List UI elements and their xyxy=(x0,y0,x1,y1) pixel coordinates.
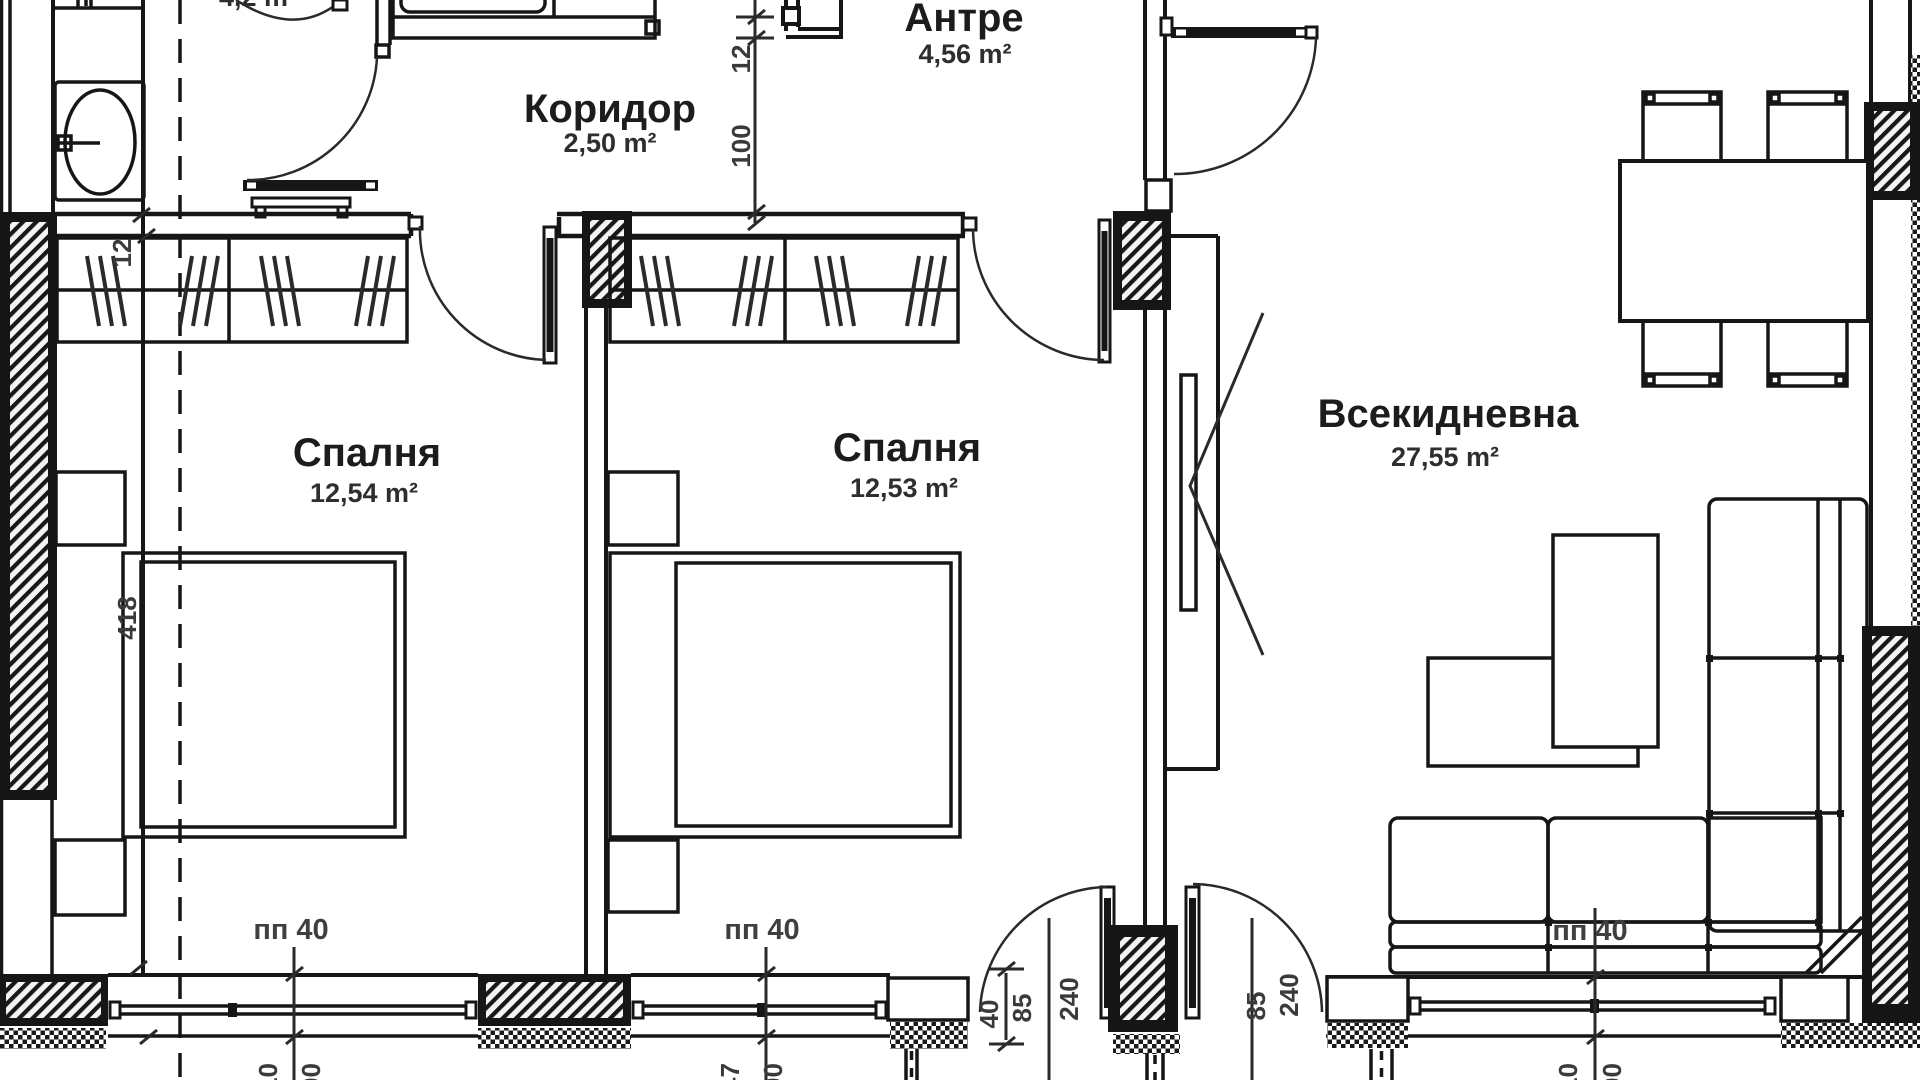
svg-text:240: 240 xyxy=(1274,973,1304,1016)
svg-text:85: 85 xyxy=(1241,992,1271,1021)
svg-text:00: 00 xyxy=(296,1063,326,1080)
svg-text:4,2 m²: 4,2 m² xyxy=(219,0,297,12)
svg-text:00: 00 xyxy=(758,1063,788,1080)
svg-text:Спалня: Спалня xyxy=(293,431,441,475)
svg-text:12,53 m²: 12,53 m² xyxy=(850,473,958,503)
svg-text:Всекидневна: Всекидневна xyxy=(1318,392,1580,436)
svg-text:Коридор: Коридор xyxy=(524,87,696,131)
svg-text:418: 418 xyxy=(112,596,142,639)
svg-text:47: 47 xyxy=(715,1063,745,1080)
svg-text:12: 12 xyxy=(107,239,137,268)
svg-text:85: 85 xyxy=(1007,994,1037,1023)
svg-text:10: 10 xyxy=(253,1063,283,1080)
svg-text:00: 00 xyxy=(1597,1063,1627,1080)
svg-text:4,56 m²: 4,56 m² xyxy=(918,39,1011,69)
svg-text:12,54 m²: 12,54 m² xyxy=(310,478,418,508)
svg-text:Спалня: Спалня xyxy=(833,426,981,470)
svg-text:пп 40: пп 40 xyxy=(1552,915,1627,947)
svg-text:пп 40: пп 40 xyxy=(724,914,799,946)
svg-text:Антре: Антре xyxy=(904,0,1023,40)
svg-text:пп 40: пп 40 xyxy=(253,914,328,946)
svg-text:27,55 m²: 27,55 m² xyxy=(1391,442,1499,472)
svg-text:240: 240 xyxy=(1054,977,1084,1020)
svg-text:12: 12 xyxy=(726,45,756,74)
svg-text:10: 10 xyxy=(1553,1063,1583,1080)
svg-text:100: 100 xyxy=(726,124,756,167)
svg-text:40: 40 xyxy=(974,1000,1004,1029)
svg-text:2,50 m²: 2,50 m² xyxy=(563,128,656,158)
